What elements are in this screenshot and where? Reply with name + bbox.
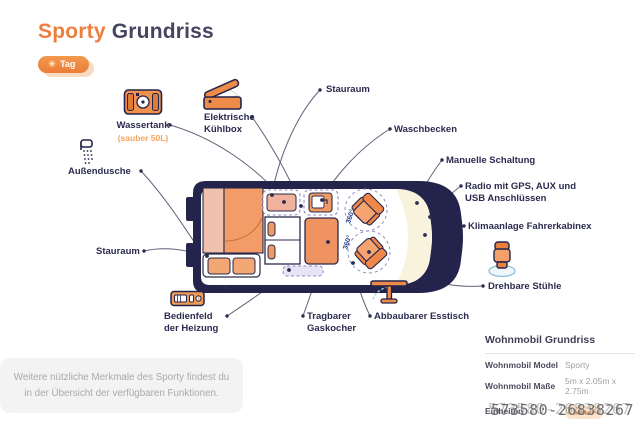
info-row-model: Wohnmobil Model Sporty bbox=[485, 360, 635, 370]
overhead-compartment bbox=[263, 190, 300, 215]
cooler-icon bbox=[200, 76, 246, 112]
info-row-masse-value: 5m x 2.05m x 2.75m bbox=[565, 376, 635, 396]
footer-note-text: Weitere nützliche Merkmale des Sporty fi… bbox=[9, 370, 234, 400]
sink-unit bbox=[304, 190, 338, 215]
shower-icon bbox=[75, 138, 103, 168]
callout-klimaanlage: Klimaanlage Fahrerkabinex bbox=[468, 221, 592, 233]
kitchen-counter bbox=[305, 218, 338, 264]
callout-stauraum-oben: Stauraum bbox=[326, 84, 370, 96]
callout-stauraum-links: Stauraum bbox=[96, 246, 140, 258]
floorplan-page: Sporty Grundriss ☀ Tag bbox=[0, 0, 640, 426]
callout-kuehlbox: Elektrische Kühlbox bbox=[204, 112, 266, 135]
swivel-chair-icon bbox=[486, 240, 518, 280]
callout-gaskocher: Tragbarer Gaskocher bbox=[307, 311, 365, 334]
callout-wassertank: Wassertank (sauber 50L) bbox=[103, 120, 183, 143]
callout-stuehle: Drehbare Stühle bbox=[488, 281, 561, 293]
footer-note-box: Weitere nützliche Merkmale des Sporty fi… bbox=[0, 358, 243, 413]
callout-wassertank-label: Wassertank bbox=[117, 120, 170, 131]
watermark-number: 573580-26838267 bbox=[491, 401, 634, 419]
under-bed-storage bbox=[203, 254, 260, 277]
info-row-masse-label: Wohnmobil Maße bbox=[485, 381, 565, 391]
info-row-masse: Wohnmobil Maße 5m x 2.05m x 2.75m bbox=[485, 376, 635, 396]
callout-esstisch: Abbaubarer Esstisch bbox=[374, 311, 469, 323]
heater-control-icon bbox=[170, 290, 206, 308]
bed bbox=[203, 188, 263, 253]
callout-waschbecken: Waschbecken bbox=[394, 124, 457, 136]
callout-bedienfeld: Bedienfeld der Heizung bbox=[164, 311, 228, 334]
callout-radio: Radio mit GPS, AUX und USB Anschlüssen bbox=[465, 181, 577, 204]
info-row-model-value: Sporty bbox=[565, 360, 635, 370]
info-panel-heading: Wohnmobil Grundriss bbox=[485, 334, 635, 354]
kitchen-cabinet bbox=[265, 217, 300, 264]
folding-table-icon bbox=[368, 277, 410, 307]
callout-wassertank-sublabel: (sauber 50L) bbox=[103, 133, 183, 143]
water-tank-icon bbox=[123, 88, 163, 116]
callout-schaltung: Manuelle Schaltung bbox=[446, 155, 535, 167]
callout-aussendusche: Außendusche bbox=[68, 166, 131, 178]
info-row-model-label: Wohnmobil Model bbox=[485, 360, 565, 370]
